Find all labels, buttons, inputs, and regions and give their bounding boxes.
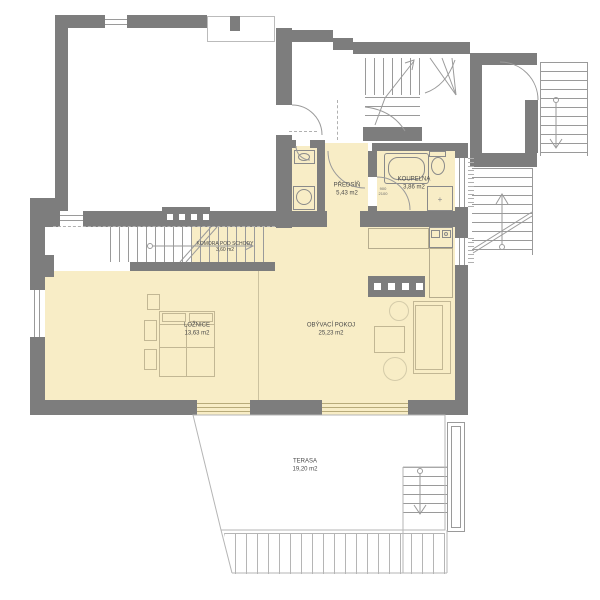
wall [310, 140, 325, 148]
wall [130, 262, 275, 271]
wall [210, 211, 276, 227]
chimney-flue [203, 214, 209, 220]
wall [317, 148, 325, 213]
retaining-wall-inner [451, 426, 461, 528]
wall [470, 53, 482, 167]
nightstand [144, 349, 157, 370]
room-name: LOŽNICE [184, 323, 210, 329]
room-label-komora: KOMORA POD SCHODY 3,60 m2 [197, 241, 254, 254]
room-name: OBÝVACÍ POKOJ [307, 323, 355, 329]
bed-foot-line [159, 347, 215, 348]
wall [288, 30, 333, 42]
room-label-terasa: TERASA 19,20 m2 [292, 459, 317, 474]
room-area: 13,63 m2 [184, 330, 209, 336]
window [60, 211, 83, 227]
kitchen-sink-basin [431, 230, 440, 238]
wall [455, 207, 468, 238]
wall [30, 400, 197, 415]
wall-pilaster [45, 255, 54, 277]
chimney [368, 276, 425, 297]
wall-stub [230, 16, 240, 31]
shower: + [427, 186, 453, 211]
chimney-flue [374, 283, 381, 290]
wall [292, 140, 296, 148]
stairs-hall-lower [365, 97, 420, 123]
room-name: KOMORA POD SCHODY [197, 241, 254, 247]
window [105, 15, 127, 28]
kitchen-counter-side [429, 248, 453, 298]
kitchen-hob-ring [444, 232, 448, 236]
wall [83, 211, 162, 227]
floor-opening-dashed [289, 131, 317, 132]
window [455, 158, 468, 207]
plant [383, 357, 407, 381]
room-name: PŘEDSÍŇ [334, 183, 361, 189]
door-height: 2100 [379, 191, 388, 196]
chimney-flue [167, 214, 173, 220]
door-dimension-label: 900 2100 [379, 186, 388, 196]
wall [127, 15, 207, 28]
floor-opening-dashed [337, 100, 338, 140]
wall [333, 38, 353, 50]
room-area: 3,86 m2 [403, 184, 425, 190]
wall [30, 198, 68, 212]
nightstand [144, 320, 157, 341]
washing-machine-drum [296, 189, 312, 205]
room-area: 3,60 m2 [216, 247, 234, 253]
terrace-door [322, 400, 408, 415]
wall [360, 211, 457, 227]
passage [327, 211, 360, 227]
chimney-flue [388, 283, 395, 290]
stairs-terrace [403, 467, 447, 521]
terrace-door [197, 400, 250, 415]
wall [525, 100, 538, 153]
toilet-bowl [431, 157, 445, 175]
chimney [162, 207, 210, 227]
coffee-table [374, 326, 405, 353]
stairs-exterior-east [472, 168, 533, 255]
room-area: 5,43 m2 [336, 190, 358, 196]
window [455, 238, 468, 265]
wall [455, 265, 468, 415]
wall [276, 211, 327, 227]
room-name: KOUPELNA [398, 177, 431, 183]
wardrobe [147, 294, 160, 310]
sofa-seat [415, 305, 443, 370]
ceiling-edge-dashed [53, 226, 275, 227]
wall [55, 15, 68, 207]
chimney-flue [191, 214, 197, 220]
room-name: TERASA [293, 459, 317, 465]
entrance-niche [207, 16, 275, 42]
wall [368, 151, 377, 177]
room-label-obyvaci-pokoj: OBÝVACÍ POKOJ 25,23 m2 [307, 323, 355, 338]
window-sill [468, 238, 474, 265]
room-label-predsin: PŘEDSÍŇ 5,43 m2 [334, 183, 361, 198]
wall [408, 400, 457, 415]
kitchen-counter [368, 228, 429, 249]
stairs-exterior-top [540, 62, 588, 156]
wall [32, 211, 60, 227]
wall [372, 143, 455, 151]
room-area: 19,20 m2 [292, 466, 317, 472]
room-area: 25,23 m2 [318, 330, 343, 336]
wall [455, 143, 468, 158]
room-old-building [68, 28, 275, 227]
floor-plan: + [0, 0, 600, 600]
chimney-flue [416, 283, 423, 290]
washbasin-bowl [298, 153, 310, 161]
entry-room [482, 65, 525, 153]
plant [389, 301, 409, 321]
stair-landing-wall [363, 127, 422, 141]
room-predsin [325, 143, 368, 213]
wall [250, 400, 322, 415]
stair-strip [45, 262, 130, 271]
bed-pillow [162, 313, 186, 322]
terrace-railing [224, 533, 445, 574]
chimney-flue [402, 283, 409, 290]
wall [470, 153, 537, 167]
room-label-loznice: LOŽNICE 13,63 m2 [184, 323, 210, 338]
chimney-flue [179, 214, 185, 220]
window [30, 290, 45, 337]
room-label-koupelna: KOUPELNA 3,86 m2 [398, 177, 431, 192]
stairs-hall-upper [365, 58, 427, 95]
window-sill [468, 158, 474, 207]
wall [368, 206, 377, 213]
wall [353, 42, 470, 54]
bed-pillow [189, 313, 213, 322]
bedroom-partition-line [258, 271, 259, 400]
